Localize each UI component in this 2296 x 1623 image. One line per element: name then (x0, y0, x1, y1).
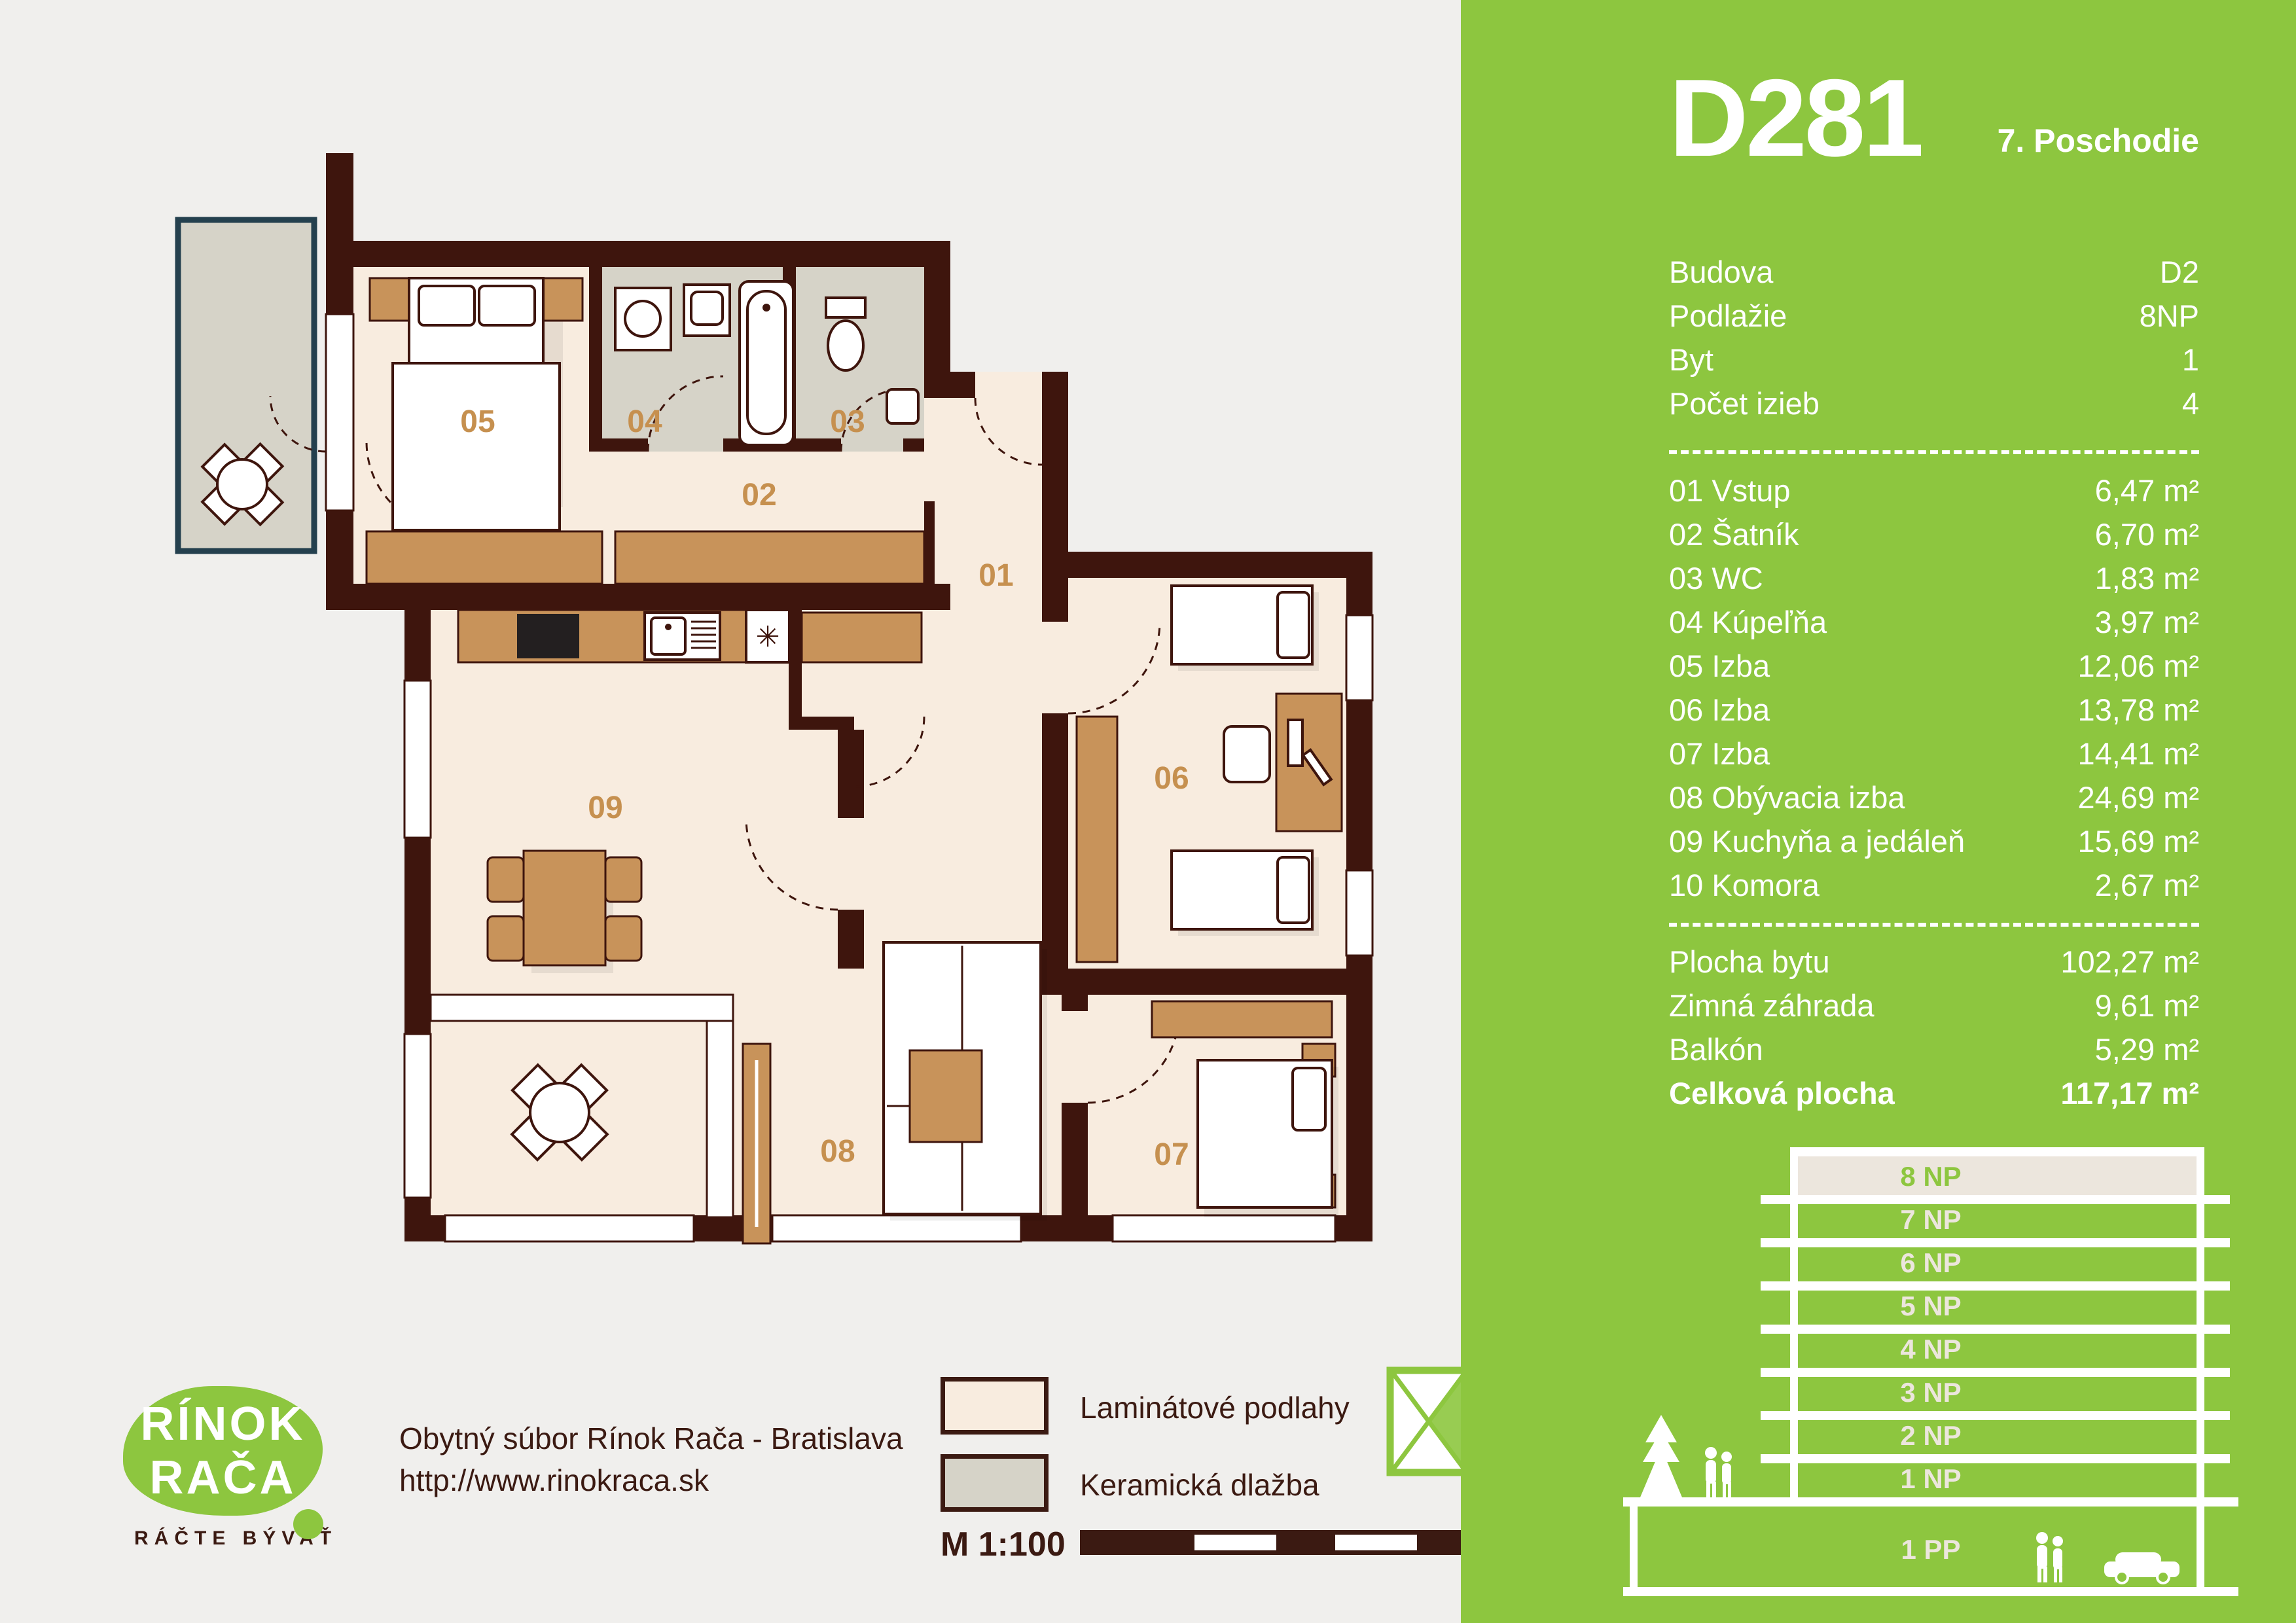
project-name: Obytný súbor Rínok Rača - Bratislava (399, 1418, 903, 1459)
project-url[interactable]: http://www.rinokraca.sk (399, 1459, 903, 1501)
room-row: 04 Kúpeľňa3,97 m² (1669, 600, 2199, 644)
info-panel: D281 7. Poschodie BudovaD2 Podlažie8NP B… (1461, 0, 2296, 1623)
room-label-02: 02 (742, 478, 776, 512)
legend-swatch-ceramic (941, 1454, 1049, 1512)
floor-row-5np: 5 NP (1900, 1291, 1961, 1321)
scale-bar (1080, 1530, 1473, 1555)
people-icon-ground (1705, 1447, 1732, 1497)
info-row: BudovaD2 (1669, 250, 2199, 294)
room-row: 09 Kuchyňa a jedáleň15,69 m² (1669, 819, 2199, 863)
legend-label-ceramic: Keramická dlažba (1080, 1467, 1319, 1503)
floor-row-7np: 7 NP (1900, 1204, 1961, 1235)
room-list: 01 Vstup6,47 m² 02 Šatník6,70 m² 03 WC1,… (1669, 469, 2199, 907)
separator (1669, 923, 2199, 927)
room-label-05: 05 (460, 404, 495, 439)
project-address: Obytný súbor Rínok Rača - Bratislava htt… (399, 1418, 903, 1501)
info-row: Počet izieb4 (1669, 382, 2199, 425)
room-row: 05 Izba12,06 m² (1669, 644, 2199, 688)
area-totals: Plocha bytu102,27 m² Zimná záhrada9,61 m… (1669, 940, 2199, 1115)
fridge-icon: ✳ (756, 620, 780, 654)
room-label-08: 08 (820, 1134, 855, 1169)
room-label-07: 07 (1154, 1137, 1189, 1172)
car-icon (2104, 1552, 2179, 1583)
floor-row-6np: 6 NP (1900, 1247, 1961, 1278)
room-row: 07 Izba14,41 m² (1669, 732, 2199, 776)
room-label-09: 09 (588, 791, 622, 825)
room-row: 06 Izba13,78 m² (1669, 688, 2199, 732)
floor-row-1pp: 1 PP (1901, 1534, 1960, 1565)
floor-row-3np: 3 NP (1900, 1377, 1961, 1408)
room-label-04: 04 (627, 404, 662, 439)
floor-row-1np: 1 NP (1900, 1463, 1961, 1494)
legend-label-laminate: Laminátové podlahy (1080, 1390, 1350, 1425)
panel-header: D281 7. Poschodie (1669, 63, 2199, 173)
balcony (178, 220, 314, 551)
wardrobes (367, 531, 924, 584)
total-row-overall: Celková plocha117,17 m² (1669, 1071, 2199, 1115)
building-info: BudovaD2 Podlažie8NP Byt1 Počet izieb4 (1669, 250, 2199, 425)
total-row: Balkón5,29 m² (1669, 1027, 2199, 1071)
info-row: Byt1 (1669, 338, 2199, 382)
room-row: 02 Šatník6,70 m² (1669, 512, 2199, 556)
room-label-03: 03 (830, 404, 865, 439)
kitchen: ✳ (458, 610, 922, 662)
people-icon-garage (2036, 1532, 2063, 1582)
brand-line1: RÍNOK (141, 1397, 306, 1451)
room-label-06: 06 (1154, 761, 1189, 796)
floor-row-4np: 4 NP (1900, 1334, 1961, 1364)
floor-row-2np: 2 NP (1900, 1420, 1961, 1451)
scale-bar-segment (1194, 1535, 1276, 1550)
brand-dot-icon (293, 1509, 323, 1539)
room-row: 08 Obývacia izba24,69 m² (1669, 776, 2199, 819)
legend-swatch-laminate (941, 1377, 1049, 1435)
unit-id: D281 (1669, 63, 1922, 173)
room-row: 03 WC1,83 m² (1669, 556, 2199, 600)
total-row: Zimná záhrada9,61 m² (1669, 984, 2199, 1027)
room-row: 01 Vstup6,47 m² (1669, 469, 2199, 512)
page: ✳ (0, 0, 2296, 1623)
info-row: Podlažie8NP (1669, 294, 2199, 338)
map-scale-label: M 1:100 (941, 1525, 1066, 1564)
floor-plan: ✳ (0, 0, 1461, 1623)
room-label-01: 01 (978, 558, 1013, 593)
brand-line2: RAČA (150, 1451, 296, 1505)
winter-garden-icon (1386, 1366, 1471, 1476)
floor-row-8np: 8 NP (1900, 1161, 1961, 1192)
floor-8np-highlight (1798, 1156, 2197, 1195)
floor-title: 7. Poschodie (1998, 122, 2199, 173)
building-section-diagram: 8 NP 7 NP 6 NP 5 NP 4 NP 3 NP 2 NP 1 NP … (1623, 1140, 2238, 1605)
brand-logo: RÍNOK RAČA (123, 1386, 323, 1516)
tree-icon (1640, 1415, 1682, 1497)
total-row: Plocha bytu102,27 m² (1669, 940, 2199, 984)
scale-bar-segment (1335, 1535, 1417, 1550)
room-row: 10 Komora2,67 m² (1669, 863, 2199, 907)
separator (1669, 450, 2199, 454)
